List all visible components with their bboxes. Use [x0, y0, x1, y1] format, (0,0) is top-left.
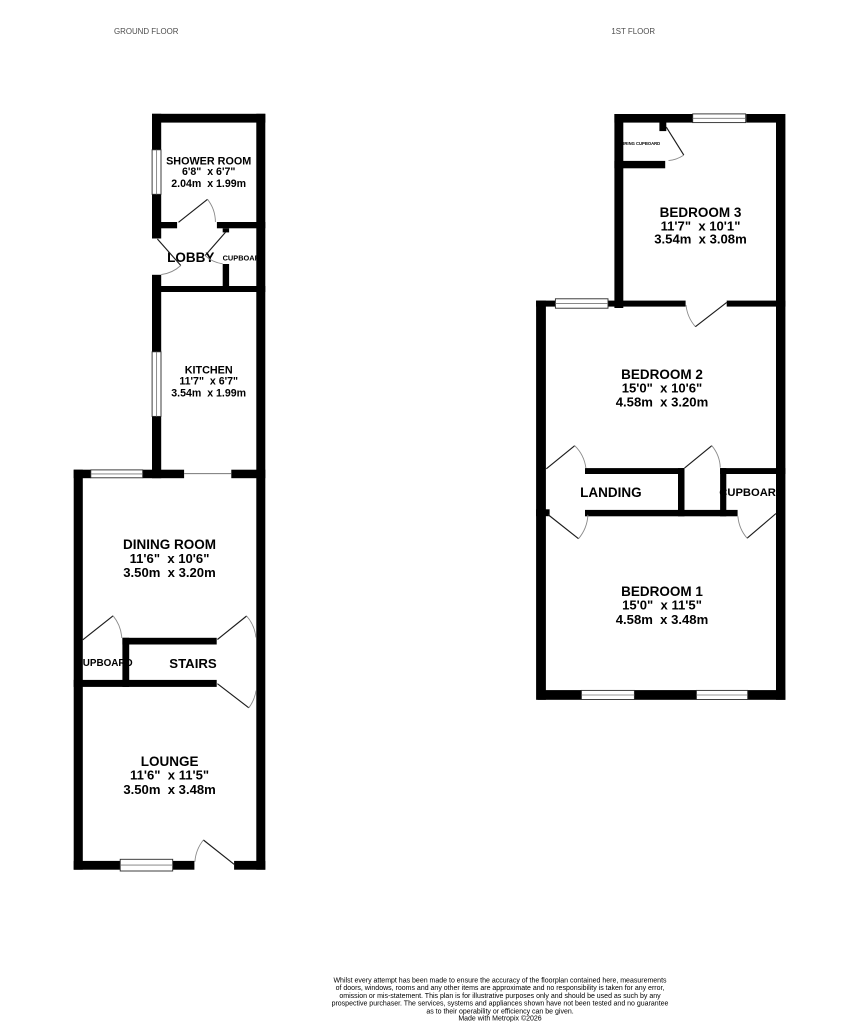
- svg-text:4.58m x 3.20m: 4.58m x 3.20m: [616, 395, 708, 410]
- svg-text:prospective purchaser. The ser: prospective purchaser. The services, sys…: [332, 1001, 669, 1008]
- svg-text:LOUNGE: LOUNGE: [141, 754, 199, 769]
- svg-text:AIRING CUPBOARD: AIRING CUPBOARD: [620, 141, 660, 146]
- svg-text:as to their operability or eff: as to their operability or efficiency ca…: [426, 1008, 573, 1015]
- svg-text:3.54m x 1.99m: 3.54m x 1.99m: [171, 388, 246, 400]
- svg-text:Whilst every attempt has been: Whilst every attempt has been made to en…: [333, 978, 667, 985]
- svg-text:1ST FLOOR: 1ST FLOOR: [611, 27, 655, 36]
- svg-text:15'0" x 11'5": 15'0" x 11'5": [622, 598, 702, 613]
- svg-text:4.58m x 3.48m: 4.58m x 3.48m: [616, 612, 708, 627]
- svg-text:2.04m x 1.99m: 2.04m x 1.99m: [171, 178, 246, 190]
- svg-text:omission or mis-statement. Thi: omission or mis-statement. This plan is …: [339, 993, 661, 1000]
- svg-text:LANDING: LANDING: [580, 485, 642, 500]
- svg-text:11'6" x 10'6": 11'6" x 10'6": [130, 551, 210, 566]
- svg-text:DINING ROOM: DINING ROOM: [123, 537, 216, 552]
- svg-text:CUPBOARD: CUPBOARD: [719, 487, 784, 499]
- svg-text:of doors, windows, rooms and a: of doors, windows, rooms and any other i…: [336, 985, 665, 992]
- svg-text:11'7" x 6'7": 11'7" x 6'7": [179, 376, 238, 388]
- svg-text:GROUND FLOOR: GROUND FLOOR: [114, 27, 179, 36]
- svg-text:KITCHEN: KITCHEN: [185, 364, 233, 376]
- svg-text:11'6" x 11'5": 11'6" x 11'5": [130, 768, 209, 783]
- svg-text:3.54m x 3.08m: 3.54m x 3.08m: [654, 232, 746, 247]
- svg-text:3.50m x 3.20m: 3.50m x 3.20m: [123, 565, 215, 580]
- svg-text:6'8" x 6'7": 6'8" x 6'7": [182, 166, 235, 178]
- svg-text:3.50m x 3.48m: 3.50m x 3.48m: [123, 782, 215, 797]
- svg-text:Made with Metropix ©2026: Made with Metropix ©2026: [458, 1015, 541, 1023]
- svg-text:STAIRS: STAIRS: [169, 656, 217, 671]
- svg-text:BEDROOM 1: BEDROOM 1: [621, 584, 703, 599]
- svg-text:15'0" x 10'6": 15'0" x 10'6": [622, 381, 703, 396]
